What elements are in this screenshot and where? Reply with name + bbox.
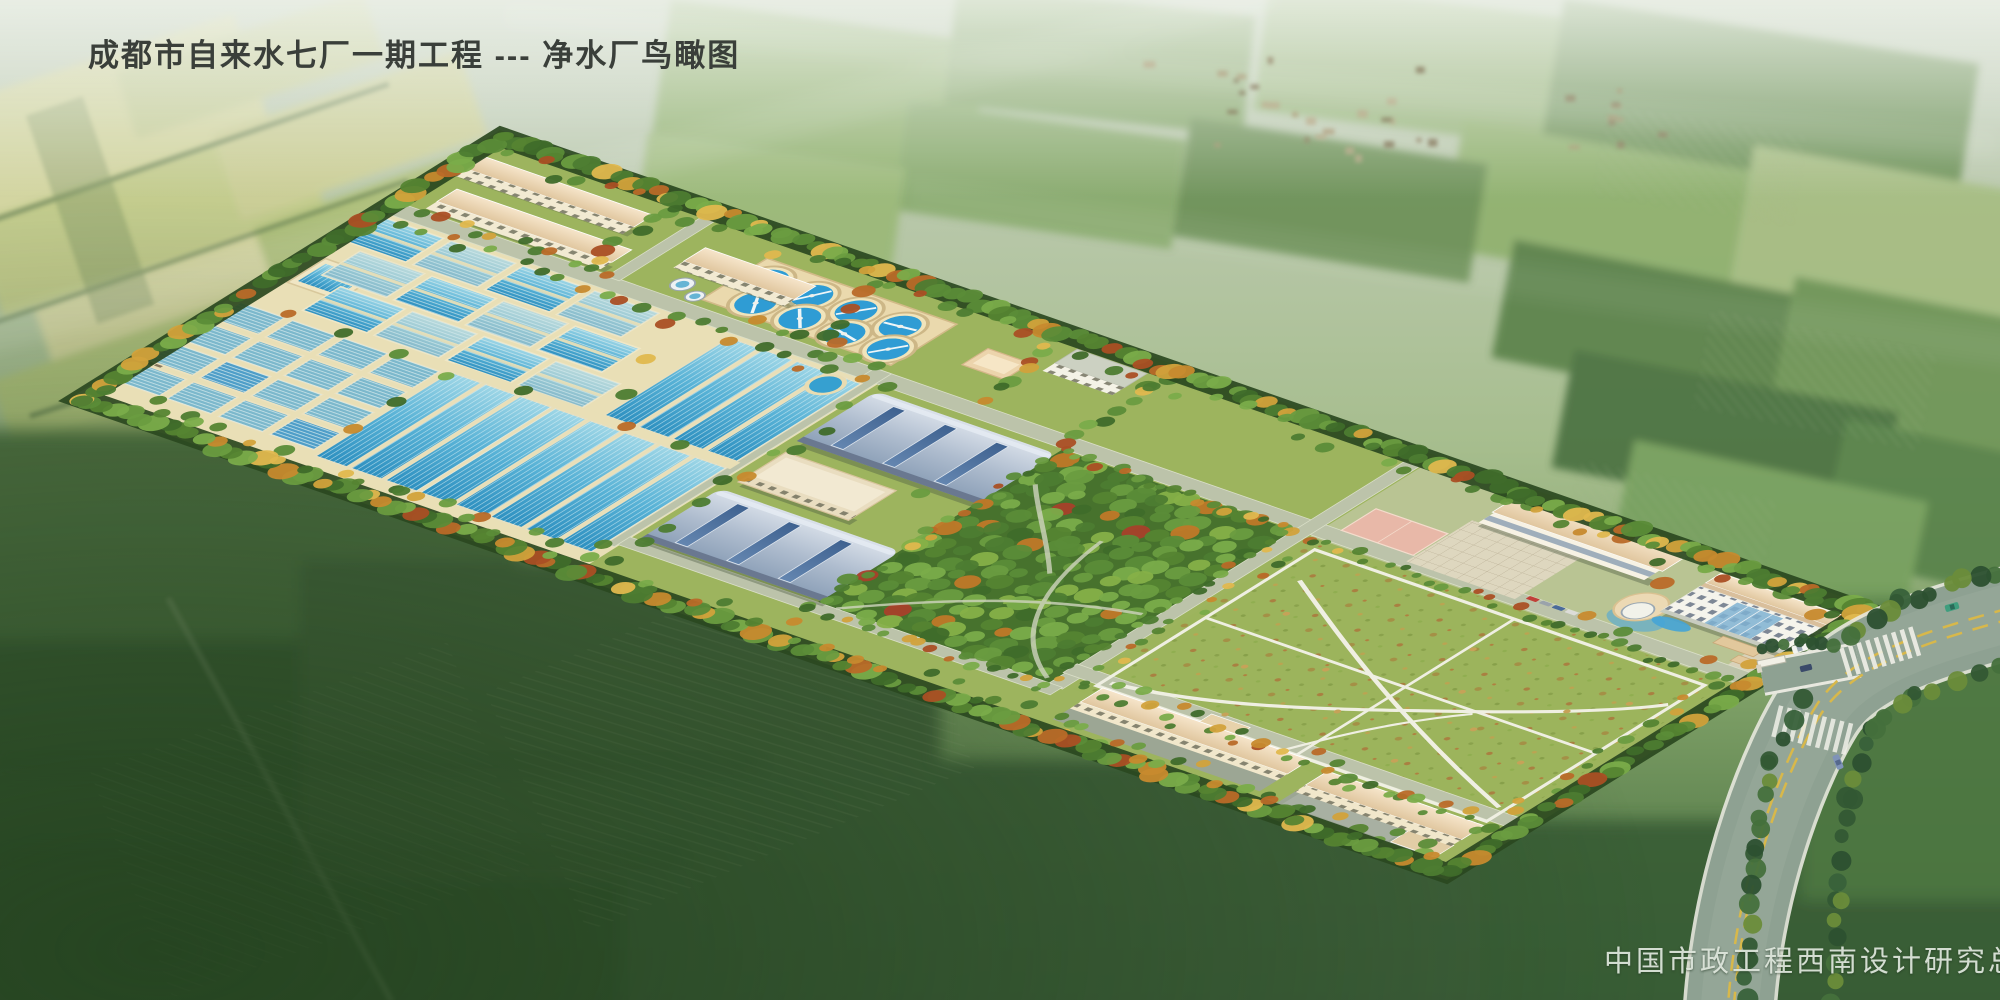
scene-canvas <box>0 0 2000 1000</box>
design-institute-credit: 中国市政工程西南设计研究总院 <box>1604 938 2000 980</box>
aerial-rendering: 成都市自来水七厂一期工程 --- 净水厂鸟瞰图 中国市政工程西南设计研究总院 <box>0 0 2000 1000</box>
drawing-title: 成都市自来水七厂一期工程 --- 净水厂鸟瞰图 <box>88 30 740 75</box>
